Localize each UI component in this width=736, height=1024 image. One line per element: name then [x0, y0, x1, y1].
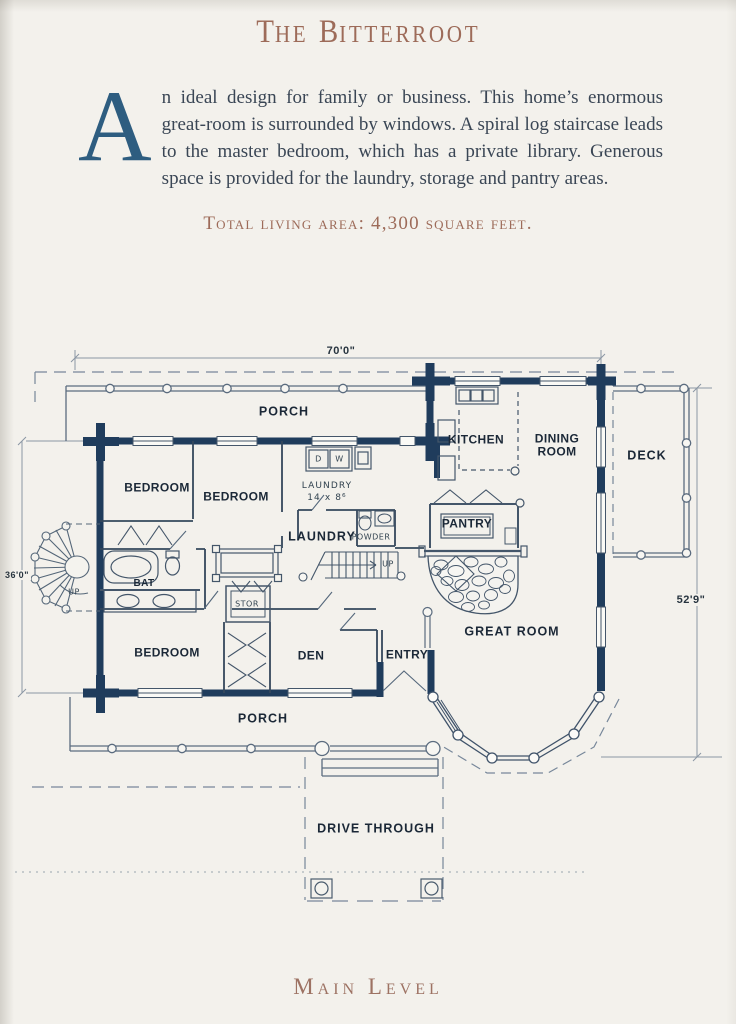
great-room-window-wall: [423, 608, 432, 649]
room-label-bedroom-3: BEDROOM: [134, 647, 199, 660]
room-label-kitchen: KITCHEN: [448, 434, 504, 447]
room-label-powder: POWDER: [352, 533, 391, 542]
book-page: { "page_title": { "t1": "T", "t2": "HE",…: [0, 0, 736, 1024]
room-label-drive-through: DRIVE THROUGH: [317, 822, 435, 835]
dimension-lines: [18, 350, 722, 761]
intro-text: n ideal design for family or business. T…: [162, 87, 663, 189]
room-label-pantry: PANTRY: [442, 518, 492, 531]
powder-fixtures: [359, 511, 394, 530]
drive-through-outline: [15, 757, 585, 901]
prow-windows: [428, 692, 604, 763]
title-part-2: ITTERROOT: [339, 22, 480, 48]
annotation-laundry-note-2: 14 x 8⁶: [307, 493, 347, 503]
annotation-laundry-note-1: LAUNDRY: [302, 481, 353, 491]
room-label-deck: DECK: [627, 449, 666, 462]
room-label-bedroom-1: BEDROOM: [124, 482, 189, 495]
intro-paragraph: An ideal design for family or business. …: [78, 84, 663, 192]
stone-fireplace: [419, 546, 527, 614]
annotation-up-spiral: UP: [68, 588, 80, 597]
room-label-bedroom-2: BEDROOM: [203, 491, 268, 504]
top-porch-railing: [66, 384, 428, 441]
room-label-porch-bottom: PORCH: [238, 712, 288, 725]
annotation-washer: W: [335, 455, 343, 464]
deck-railing: [613, 384, 691, 559]
dining-line-2: ROOM: [535, 445, 579, 458]
title-initial-2: B: [319, 14, 339, 50]
room-label-great-room: GREAT ROOM: [464, 625, 559, 638]
footer-main-level: Main Level: [0, 974, 736, 1000]
total-living-area: Total living area: 4,300 square feet.: [0, 213, 736, 235]
built-in-dresser: [213, 546, 282, 582]
drop-cap: A: [78, 88, 152, 166]
dining-line-1: DINING: [535, 432, 579, 445]
room-label-entry: ENTRY: [386, 649, 428, 662]
room-label-den: DEN: [298, 650, 325, 663]
annotation-up-main: UP: [382, 560, 394, 569]
room-label-bath: BAT: [133, 579, 154, 590]
room-label-dining: DININGROOM: [535, 432, 579, 457]
room-label-porch-top: PORCH: [259, 405, 309, 418]
dimension-top: 70'0": [325, 345, 358, 357]
title-initial-1: T: [256, 14, 275, 50]
room-label-laundry: LAUNDRY: [288, 530, 356, 543]
dimension-left: 36'0": [3, 570, 31, 580]
bottom-porch-railing: [70, 697, 440, 776]
title-part-1: HE: [275, 22, 308, 48]
dimension-right: 52'9": [675, 594, 708, 606]
annotation-dryer: D: [315, 455, 322, 464]
spiral-staircase: [31, 522, 100, 613]
room-label-storage: STOR: [235, 600, 259, 609]
page-title: THEBITTERROOT: [0, 14, 736, 51]
